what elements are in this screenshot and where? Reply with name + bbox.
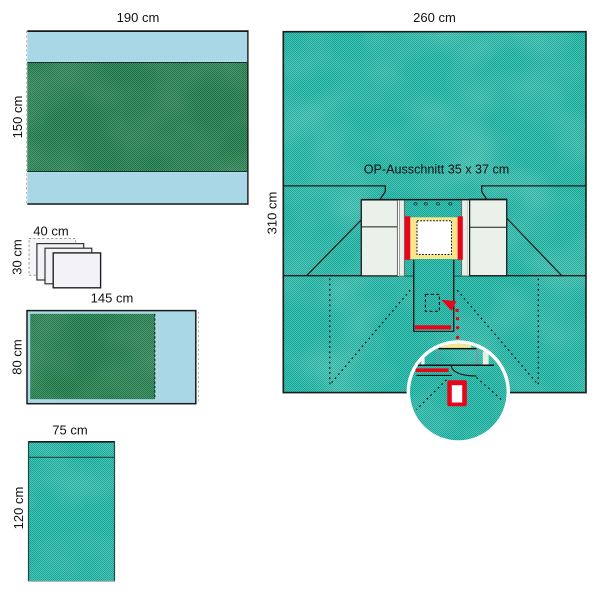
svg-text:75 cm: 75 cm [52, 423, 87, 438]
svg-text:145 cm: 145 cm [91, 291, 134, 306]
svg-text:190 cm: 190 cm [117, 10, 160, 25]
svg-text:80 cm: 80 cm [10, 339, 25, 374]
svg-text:OP-Ausschnitt 35 x 37 cm: OP-Ausschnitt 35 x 37 cm [364, 163, 510, 177]
svg-text:310 cm: 310 cm [265, 192, 280, 235]
svg-text:40 cm: 40 cm [33, 224, 68, 239]
svg-text:30 cm: 30 cm [10, 239, 25, 274]
svg-text:150 cm: 150 cm [10, 96, 25, 139]
svg-text:120 cm: 120 cm [11, 487, 26, 530]
svg-text:260 cm: 260 cm [413, 10, 456, 25]
